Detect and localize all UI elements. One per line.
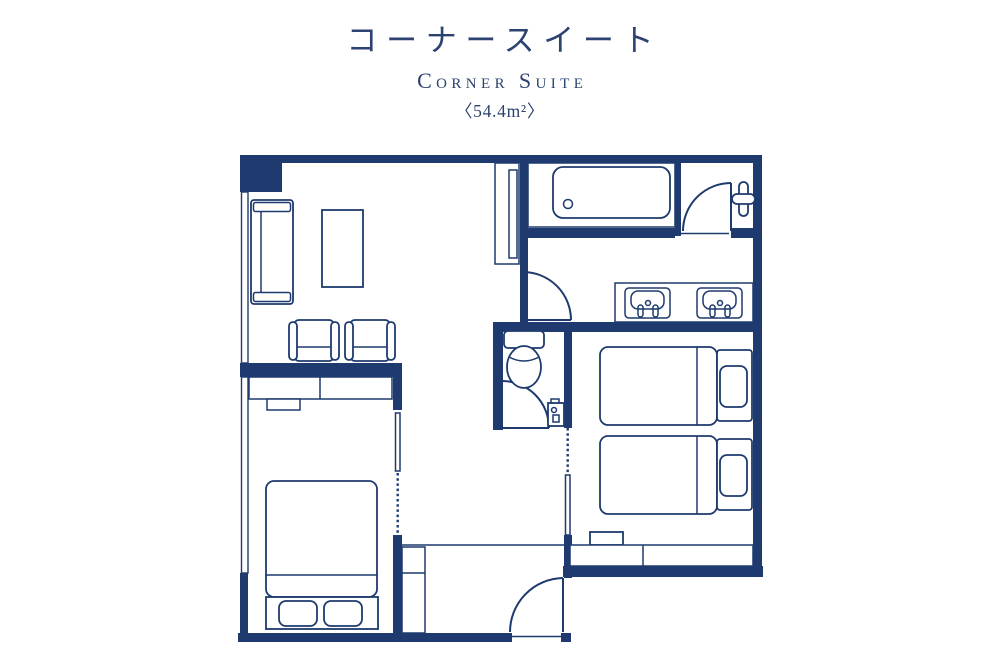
entry-group (402, 547, 425, 633)
twin-bedroom-group (570, 347, 753, 566)
toilet-bowl (507, 346, 541, 388)
shower-room-door (683, 183, 731, 231)
sofa-armrest-top (254, 203, 291, 212)
pillow (720, 366, 747, 407)
bedroom-window (242, 377, 249, 573)
tv-cabinet (495, 163, 519, 264)
corner-pillar (240, 155, 282, 192)
living-bedroom-wall (240, 363, 402, 377)
toilet-left-wall (493, 332, 503, 430)
washbasin-2 (697, 288, 742, 318)
twin-bottom-wall (563, 566, 763, 577)
door-swing-arc (523, 272, 571, 320)
bedroom-shelf (267, 399, 300, 410)
armchair-body (294, 320, 334, 361)
toilet-room-group (504, 331, 564, 426)
living-to-vanity-door (523, 272, 571, 320)
bedroom-closet (249, 377, 392, 399)
armchair-armrest-left (345, 322, 353, 360)
bathtub (553, 167, 670, 218)
door-swing-arc (683, 183, 731, 231)
coffee-table (322, 210, 363, 287)
bedroom-sliding-panel (396, 413, 401, 471)
floor-plan-page: コーナースイート Corner Suite 〈54.4m²〉 (0, 0, 1000, 667)
armchair-armrest-right (387, 322, 395, 360)
mattress (600, 436, 717, 514)
living-room-group (251, 163, 519, 361)
twin-sliding-panel (566, 475, 571, 535)
double-bed (266, 481, 378, 629)
bedroom-right-wall-lower (393, 535, 402, 642)
low-cabinet-outline (570, 545, 753, 566)
bath-shower-divider-wall (675, 163, 681, 236)
pillow-right (324, 601, 362, 626)
mattress (600, 347, 717, 425)
washbasin-1 (625, 288, 670, 318)
sliding-doors (396, 413, 571, 535)
shower-bottom-wall-stub (731, 228, 753, 238)
living-room-window (242, 192, 249, 363)
bathroom-bottom-wall (528, 228, 675, 238)
toilet-right-wall (564, 322, 572, 428)
hand-basin (548, 399, 564, 426)
floor-plan-drawing (0, 0, 1000, 667)
right-wall (753, 155, 762, 577)
tv-screen (509, 170, 517, 258)
entry-closet (402, 547, 425, 633)
low-cabinet (570, 545, 753, 566)
armchair-2 (345, 320, 395, 361)
armchair-armrest-left (289, 322, 297, 360)
living-bathroom-wall (520, 163, 528, 322)
bottom-wall (238, 633, 512, 642)
luggage-bench (590, 532, 623, 545)
armchair-body (350, 320, 390, 361)
twin-bed-2 (600, 436, 752, 514)
entrance-door (510, 578, 563, 632)
vanity-group (615, 283, 753, 322)
top-wall (240, 155, 762, 163)
door-swing-arc (510, 578, 563, 632)
armchair-armrest-right (331, 322, 339, 360)
pillow-left (279, 601, 317, 626)
sofa-outline (251, 200, 293, 304)
pillow (720, 455, 747, 496)
mattress (266, 481, 377, 597)
twin-bed-1 (600, 347, 752, 425)
bedroom-right-wall-upper (393, 367, 402, 410)
left-wall-bottom (240, 573, 248, 642)
shower-fixture-icon (732, 182, 755, 216)
bathroom-group (528, 163, 755, 227)
sofa (251, 200, 293, 304)
bottom-wall-door-stub (561, 633, 571, 642)
armchair-1 (289, 320, 339, 361)
sofa-armrest-bottom (254, 293, 291, 302)
main-bedroom-group (249, 377, 392, 629)
